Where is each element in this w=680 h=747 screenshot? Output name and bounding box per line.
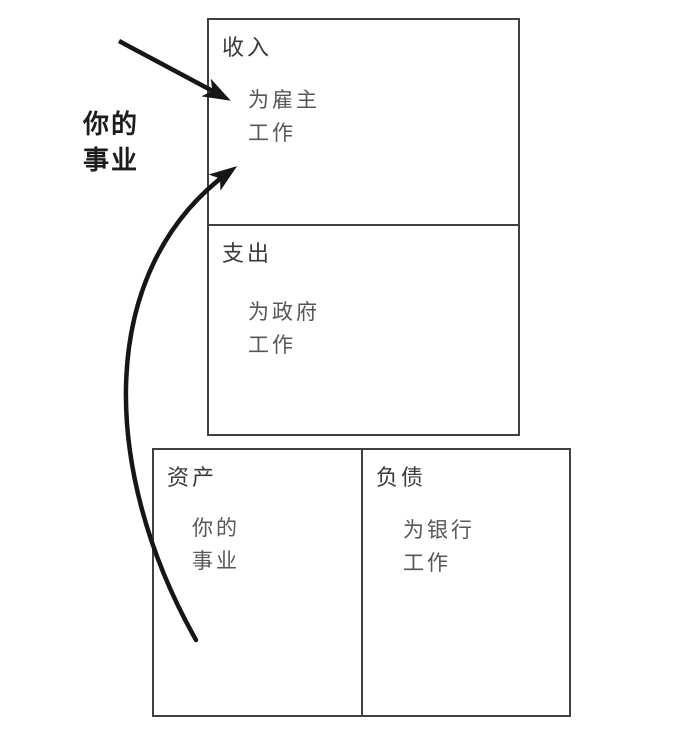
assets-note-line2: 事业 [192,545,240,578]
liabilities-note-line1: 为银行 [403,514,475,547]
liabilities-section: 负债 为银行 工作 [363,450,569,715]
side-label-line1: 你的 [83,106,139,142]
balance-sheet-box: 资产 你的 事业 负债 为银行 工作 [152,448,571,717]
income-note-line2: 工作 [248,117,320,150]
liabilities-title: 负债 [376,460,426,492]
expenses-note-line1: 为政府 [248,296,320,329]
assets-title: 资产 [167,460,217,492]
cashflow-diagram: 你的 事业 收入 为雇主 工作 支出 为政府 工作 资产 你的 事业 [0,0,680,747]
income-title: 收入 [222,30,272,62]
expenses-title: 支出 [222,236,272,268]
income-statement-box: 收入 为雇主 工作 支出 为政府 工作 [207,18,520,436]
liabilities-note: 为银行 工作 [403,514,475,580]
expenses-note-line2: 工作 [248,329,320,362]
expenses-note: 为政府 工作 [248,296,320,362]
income-note-line1: 为雇主 [248,84,320,117]
side-label-line2: 事业 [83,142,139,178]
income-note: 为雇主 工作 [248,84,320,150]
liabilities-note-line2: 工作 [403,547,475,580]
expenses-section: 支出 为政府 工作 [209,226,518,434]
assets-note-line1: 你的 [192,512,240,545]
assets-note: 你的 事业 [192,512,240,578]
income-section: 收入 为雇主 工作 [209,20,518,226]
assets-section: 资产 你的 事业 [154,450,363,715]
side-label-your-business: 你的 事业 [83,106,139,178]
